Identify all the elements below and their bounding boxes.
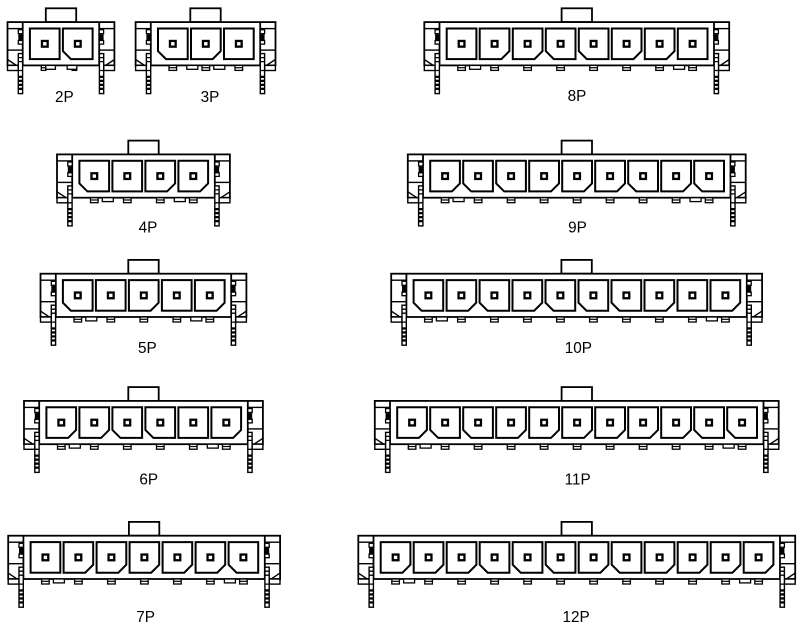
svg-text:3P: 3P (201, 89, 220, 106)
svg-text:9P: 9P (568, 220, 587, 237)
svg-text:10P: 10P (565, 340, 592, 357)
svg-text:12P: 12P (562, 609, 589, 626)
svg-text:2P: 2P (55, 89, 74, 106)
svg-text:5P: 5P (138, 340, 157, 357)
svg-text:11P: 11P (565, 471, 591, 488)
svg-text:8P: 8P (568, 88, 587, 105)
svg-text:7P: 7P (136, 609, 155, 626)
svg-text:4P: 4P (139, 220, 158, 237)
svg-text:6P: 6P (139, 472, 158, 489)
